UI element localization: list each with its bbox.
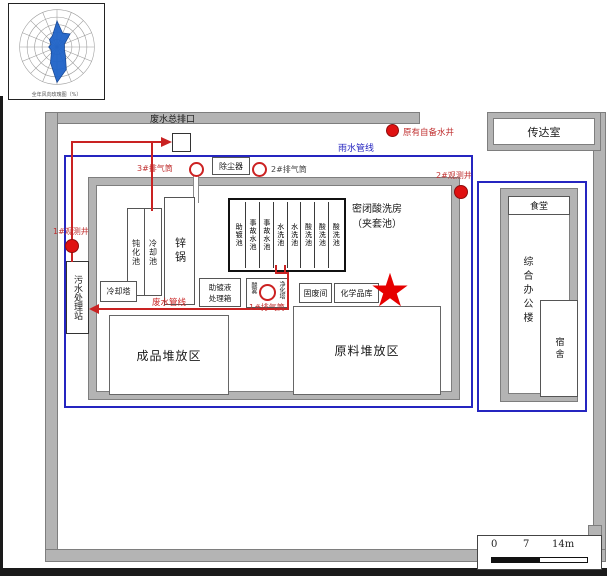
sewage-station-arrow-icon bbox=[89, 304, 99, 314]
scale-tick-0: 0 bbox=[491, 539, 497, 550]
stack3-circle bbox=[189, 162, 204, 177]
office-building-label: 综合办公楼 bbox=[519, 256, 534, 330]
dormitory: 宿舍 bbox=[540, 300, 578, 397]
scale-tick-7: 7 bbox=[523, 539, 529, 550]
waste-pipeline-label: 废水管线 bbox=[152, 296, 186, 308]
site-plan-canvas: 全年风向玫瑰图（%） 传达室 雨水管线 钝化池 冷却池 锌锅 助镀池 事故水池 … bbox=[0, 0, 607, 576]
gatehouse-room: 传达室 bbox=[493, 118, 595, 145]
scale-bar-box: 0 7 14m bbox=[477, 535, 602, 570]
cooling-tower: 冷却塔 bbox=[100, 281, 137, 302]
acid-cell-label: 事故水池 bbox=[249, 219, 256, 251]
solid-waste-room: 固废间 bbox=[299, 283, 332, 303]
waste-pipe-acid-header bbox=[275, 272, 288, 274]
wind-rose-caption: 全年风向玫瑰图（%） bbox=[9, 91, 104, 98]
canteen: 食堂 bbox=[508, 196, 570, 215]
existing-well-dot bbox=[386, 124, 399, 137]
cooling-tower-label: 冷却塔 bbox=[107, 286, 131, 297]
office-building-label-text: 综合办公楼 bbox=[519, 256, 534, 326]
observation-well-1-dot bbox=[65, 239, 79, 253]
wall-right bbox=[593, 112, 606, 562]
waste-outlet-label: 废水总排口 bbox=[150, 112, 195, 125]
waste-pipe-acid-drop bbox=[287, 272, 289, 310]
dust-collector-label: 除尘器 bbox=[219, 161, 243, 172]
acid-cell-rinse-1: 水洗池 bbox=[274, 202, 288, 268]
stack2-circle bbox=[252, 162, 267, 177]
stack1-label: 1#排气筒 bbox=[249, 302, 285, 313]
dust-collector: 除尘器 bbox=[212, 157, 250, 175]
stack1-circle bbox=[259, 284, 276, 301]
zinc-kettle-label: 锌锅 bbox=[172, 237, 188, 265]
star-marker-icon: ★ bbox=[367, 264, 413, 316]
gatehouse-label: 传达室 bbox=[528, 124, 561, 140]
acid-house-caption: 密闭酸洗房 （夹套池） bbox=[352, 203, 402, 232]
stack2-label: 2#排气筒 bbox=[271, 164, 307, 175]
flux-treatment-line1: 助镀液 bbox=[200, 282, 240, 293]
wind-rose-icon bbox=[10, 5, 104, 89]
acid-cell-pickling-1: 酸洗池 bbox=[301, 202, 315, 268]
acid-mist-tower-label-right: 净化塔 bbox=[277, 281, 286, 299]
waste-outlet-arrow-icon bbox=[161, 137, 172, 147]
cooling-pool-label: 冷却池 bbox=[148, 239, 159, 266]
acid-washing-house: 助镀池 事故水池 事故水池 水洗池 水洗池 酸洗池 酸洗池 酸洗池 bbox=[228, 198, 346, 272]
waste-outlet-box bbox=[172, 133, 191, 152]
waste-pipe-to-outlet bbox=[72, 141, 162, 143]
acid-cell-accident-1: 事故水池 bbox=[246, 202, 260, 268]
flux-treatment-line2: 处理箱 bbox=[200, 293, 240, 304]
existing-well-label: 原有自备水井 bbox=[403, 126, 454, 138]
acid-cell-pickling-2: 酸洗池 bbox=[315, 202, 329, 268]
stack3-label: 3#排气筒 bbox=[137, 163, 173, 174]
sewage-station: 污水处理站 bbox=[66, 261, 89, 334]
acid-cell-label: 酸洗池 bbox=[304, 223, 311, 247]
acid-cell-pickling-3: 酸洗池 bbox=[329, 202, 342, 268]
acid-cell-rinse-2: 水洗池 bbox=[288, 202, 302, 268]
raw-material-area: 原料堆放区 bbox=[293, 306, 441, 395]
waste-pipe-kettle-riser bbox=[151, 141, 153, 211]
rain-pipeline-label: 雨水管线 bbox=[336, 141, 376, 154]
acid-cell-label: 事故水池 bbox=[263, 219, 270, 251]
wall-top bbox=[45, 112, 420, 124]
acid-cell-label: 水洗池 bbox=[290, 223, 297, 247]
acid-cell-label: 水洗池 bbox=[276, 223, 283, 247]
wind-rose-box: 全年风向玫瑰图（%） bbox=[8, 3, 105, 100]
acid-cell-accident-2: 事故水池 bbox=[260, 202, 274, 268]
acid-cell-label: 酸洗池 bbox=[332, 223, 339, 247]
acid-house-caption-line2: （夹套池） bbox=[352, 218, 402, 233]
flux-treatment-box: 助镀液 处理箱 bbox=[199, 278, 241, 307]
raw-material-label: 原料堆放区 bbox=[334, 342, 399, 359]
acid-cell-label: 酸洗池 bbox=[318, 223, 325, 247]
sewage-station-label: 污水处理站 bbox=[71, 275, 84, 320]
finished-goods-label: 成品堆放区 bbox=[136, 347, 201, 364]
passivation-pool-label: 钝化池 bbox=[131, 239, 142, 266]
cooling-pool: 冷却池 bbox=[144, 208, 162, 296]
acid-house-caption-line1: 密闭酸洗房 bbox=[352, 203, 402, 218]
gatehouse-building: 传达室 bbox=[487, 112, 601, 151]
observation-well-2-label: 2#观测井 bbox=[436, 170, 472, 181]
scale-bar bbox=[491, 557, 588, 563]
page-edge-left bbox=[0, 96, 3, 576]
finished-goods-area: 成品堆放区 bbox=[109, 315, 229, 395]
wall-left bbox=[45, 112, 58, 562]
observation-well-2-dot bbox=[454, 185, 468, 199]
canteen-label: 食堂 bbox=[530, 199, 548, 212]
solid-waste-room-label: 固废间 bbox=[304, 288, 328, 299]
observation-well-1-label: 1#观测井 bbox=[53, 226, 89, 237]
dormitory-label: 宿舍 bbox=[553, 337, 566, 361]
acid-mist-tower-label-left: 酸雾 bbox=[249, 282, 258, 294]
zinc-kettle: 锌锅 bbox=[164, 197, 195, 305]
acid-cell-flux: 助镀池 bbox=[232, 202, 246, 268]
scale-bar-filled bbox=[492, 558, 540, 562]
scale-tick-14: 14m bbox=[552, 539, 574, 550]
acid-cell-label: 助镀池 bbox=[235, 223, 242, 247]
